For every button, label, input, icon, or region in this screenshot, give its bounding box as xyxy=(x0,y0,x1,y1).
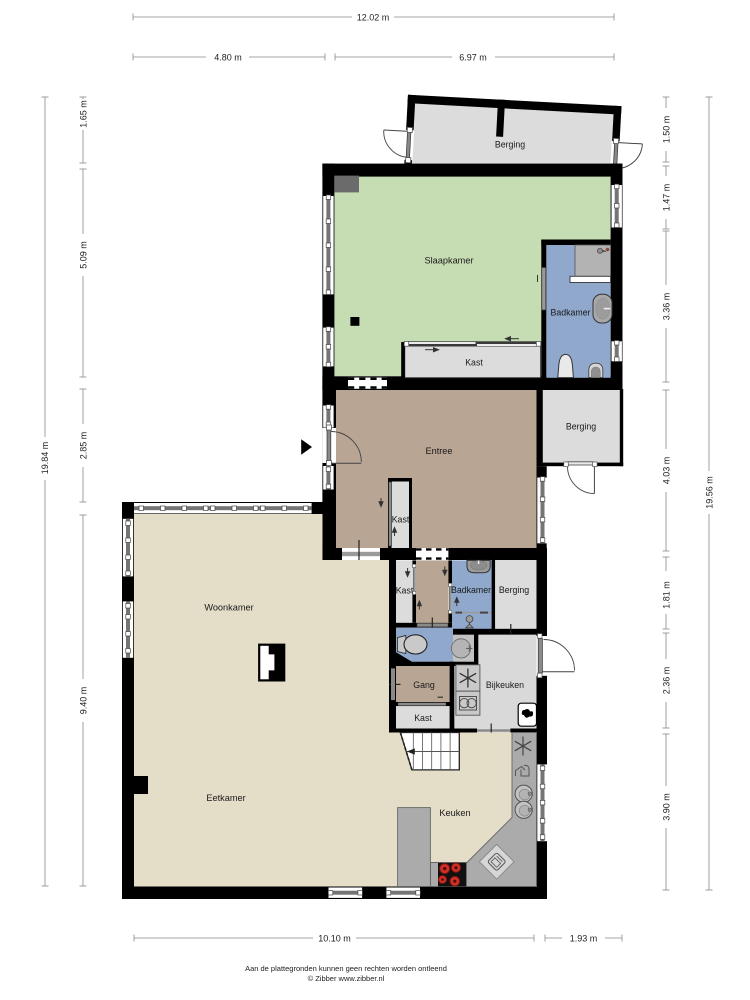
svg-text:Keuken: Keuken xyxy=(439,808,470,818)
svg-text:19.84 m: 19.84 m xyxy=(40,442,50,475)
svg-text:1.81 m: 1.81 m xyxy=(662,581,672,609)
svg-text:Slaapkamer: Slaapkamer xyxy=(424,256,473,266)
svg-text:Bijkeuken: Bijkeuken xyxy=(486,680,524,690)
svg-text:Woonkamer: Woonkamer xyxy=(204,603,253,613)
svg-text:Kast: Kast xyxy=(392,515,410,525)
svg-text:Badkamer: Badkamer xyxy=(550,308,590,318)
svg-text:2.36 m: 2.36 m xyxy=(662,667,672,695)
svg-text:Badkamer: Badkamer xyxy=(451,585,491,595)
svg-text:4.80 m: 4.80 m xyxy=(214,53,242,63)
svg-text:9.40 m: 9.40 m xyxy=(79,687,89,715)
svg-text:19.56 m: 19.56 m xyxy=(705,476,715,509)
svg-text:Berging: Berging xyxy=(499,585,529,595)
svg-text:© Zibber www.zibber.nl: © Zibber www.zibber.nl xyxy=(308,974,385,983)
svg-text:3.90 m: 3.90 m xyxy=(662,793,672,821)
svg-text:5.09 m: 5.09 m xyxy=(79,241,89,269)
svg-text:1.47 m: 1.47 m xyxy=(662,184,672,212)
svg-text:Berging: Berging xyxy=(495,140,525,150)
svg-text:Kast: Kast xyxy=(414,713,432,723)
svg-text:Aan de plattegronden kunnen ge: Aan de plattegronden kunnen geen rechten… xyxy=(245,964,447,973)
svg-text:4.03 m: 4.03 m xyxy=(662,457,672,485)
svg-text:2.85 m: 2.85 m xyxy=(79,432,89,460)
svg-text:6.97 m: 6.97 m xyxy=(459,53,487,63)
svg-text:Eetkamer: Eetkamer xyxy=(206,793,245,803)
svg-text:Berging: Berging xyxy=(566,422,596,432)
svg-text:1.65 m: 1.65 m xyxy=(79,100,89,128)
svg-text:1.93 m: 1.93 m xyxy=(570,934,598,944)
svg-text:10.10 m: 10.10 m xyxy=(318,934,351,944)
svg-text:12.02 m: 12.02 m xyxy=(357,13,390,23)
svg-text:3.36 m: 3.36 m xyxy=(662,293,672,321)
svg-text:1.50 m: 1.50 m xyxy=(662,116,672,144)
svg-text:Kast: Kast xyxy=(396,586,414,596)
svg-text:Gang: Gang xyxy=(413,680,435,690)
svg-text:Kast: Kast xyxy=(465,358,483,368)
svg-text:Entree: Entree xyxy=(425,446,452,456)
